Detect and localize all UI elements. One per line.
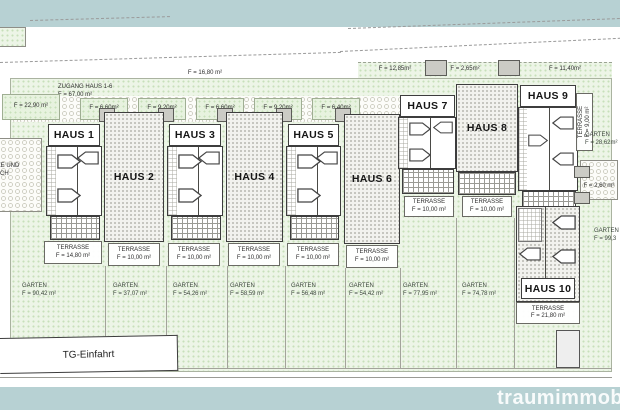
terrace-10-title: TERRASSE	[532, 306, 564, 313]
zugang-label: ZUGANG HAUS 1-6 F = 67,00 m²	[58, 84, 112, 99]
house-5-stair-hatch	[287, 147, 296, 215]
house-5-patio-hatch	[290, 216, 339, 240]
site-plan: F = 16,80 m² LÄTZE UND EREICH 0 m² ZUGAN…	[0, 0, 620, 410]
garden-2-area: F = 37,07 m²	[113, 291, 147, 299]
area-label-left-zone: F = 22,90 m²	[14, 103, 48, 111]
shed	[556, 330, 580, 368]
terrace-5-label-box: TERRASSE F = 10,00 m²	[287, 243, 339, 266]
terrace-5-area: F = 10,00 m²	[296, 255, 330, 262]
stair-arrow-left-icon	[552, 116, 574, 135]
stair-arrow-left-icon	[552, 215, 576, 235]
boundary-dash-line	[0, 52, 341, 63]
stair-arrow-left-icon	[433, 121, 453, 139]
house-2-name: HAUS 2	[114, 171, 154, 183]
paved-zone-left: LÄTZE UND EREICH 0 m²	[0, 138, 42, 212]
garden-9-area: F = 28,62m²	[585, 140, 618, 148]
entry-stub	[498, 60, 520, 76]
house-9-name: HAUS 9	[528, 90, 568, 102]
terrace-8-title: TERRASSE	[471, 199, 503, 206]
area-label-walkway: F = 16,80 m²	[170, 70, 240, 78]
garden-9-title: GARTEN	[585, 132, 618, 140]
house-1-label-box: HAUS 1	[48, 124, 100, 146]
garden-divider	[400, 268, 401, 368]
zugang-label-line1: ZUGANG HAUS 1-6	[58, 84, 112, 92]
garden-6-title: GARTEN	[349, 283, 383, 291]
house-4: HAUS 4	[226, 112, 283, 242]
tg-einfahrt-box: TG-Einfahrt	[0, 335, 178, 374]
stair-arrow-right-icon	[57, 188, 81, 208]
house-10-name: HAUS 10	[525, 283, 571, 295]
house-1-name: HAUS 1	[54, 129, 94, 141]
house-5-name: HAUS 5	[293, 129, 333, 141]
house-7-name: HAUS 7	[407, 100, 447, 112]
garden-8-label: GARTEN F = 74,78 m²	[462, 283, 496, 299]
bottom-band: traumimmobilien	[0, 387, 620, 410]
house-1-plan	[46, 146, 102, 216]
garden-boundary	[178, 368, 612, 369]
terrace-3-label-box: TERRASSE F = 10,00 m²	[168, 243, 220, 266]
garden-1-label: GARTEN F = 90,42 m²	[22, 283, 56, 299]
house-10: HAUS 10	[516, 206, 580, 302]
terrace-4-label-box: TERRASSE F = 10,00 m²	[228, 243, 280, 266]
house-9-label-box: HAUS 9	[520, 85, 576, 107]
stair-arrow-right-icon	[178, 188, 202, 208]
house-9-stair-hatch	[519, 108, 527, 190]
stair-arrow-left-icon	[316, 151, 338, 170]
garden-divider	[514, 218, 515, 368]
garden-9-label: GARTEN F = 28,62m²	[585, 132, 618, 148]
house-4-name: HAUS 4	[234, 171, 274, 183]
area-label-right-strip-2: F = 2,65m²	[440, 66, 490, 74]
stair-arrow-right-icon	[409, 148, 431, 167]
garden-2-title: GARTEN	[113, 283, 147, 291]
garden-10-area: F = 99,3	[594, 236, 619, 244]
garden-7-label: GARTEN F = 77,95 m²	[403, 283, 437, 299]
stair-arrow-right-icon	[528, 134, 548, 152]
garden-3-title: GARTEN	[173, 283, 207, 291]
house-9-wall	[549, 108, 550, 190]
green-patch-top-left	[0, 27, 26, 47]
garden-3-label: GARTEN F = 54,26 m²	[173, 283, 207, 299]
garden-4-label: GARTEN F = 58,59 m²	[230, 283, 264, 299]
area-label-right-side: F = 2,60 m²	[580, 183, 618, 191]
house-9-plan	[518, 107, 578, 191]
terrace-10-label-box: TERRASSE F = 21,80 m²	[516, 302, 580, 324]
top-band	[0, 0, 620, 27]
house-10-label-box: HAUS 10	[521, 278, 575, 299]
watermark: traumimmobilien	[497, 387, 620, 410]
terrace-6-title: TERRASSE	[356, 249, 388, 256]
house-3-name: HAUS 3	[175, 129, 215, 141]
area-label-right-strip-3: F = 11,40m²	[530, 66, 600, 74]
terrace-3-title: TERRASSE	[178, 247, 210, 254]
house-8: HAUS 8	[456, 84, 518, 172]
terrace-7-area: F = 10,00 m²	[412, 207, 446, 214]
area-label-right-strip-1: F = 12,85m²	[362, 66, 428, 74]
terrace-7-title: TERRASSE	[413, 199, 445, 206]
stair-arrow-left-icon	[77, 151, 99, 170]
terrace-1-title: TERRASSE	[57, 245, 89, 252]
garden-1-area: F = 90,42 m²	[22, 291, 56, 299]
terrace-2-title: TERRASSE	[118, 247, 150, 254]
garden-8-title: GARTEN	[462, 283, 496, 291]
boundary-dash-line	[340, 38, 620, 52]
tg-einfahrt-label: TG-Einfahrt	[63, 349, 115, 361]
garden-4-area: F = 58,59 m²	[230, 291, 264, 299]
house-8-patio-hatch	[458, 172, 516, 195]
terrace-6-area: F = 10,00 m²	[355, 257, 389, 264]
terrace-9-title: TERRASSE	[578, 95, 585, 149]
site-boundary-line	[0, 377, 612, 378]
terrace-2-area: F = 10,00 m²	[117, 255, 151, 262]
garden-6-label: GARTEN F = 54,42 m²	[349, 283, 383, 299]
house-5-plan	[286, 146, 341, 216]
house-7-stair-hatch	[399, 118, 408, 168]
stair-arrow-left-icon	[552, 249, 576, 269]
terrace-4-area: F = 10,00 m²	[237, 255, 271, 262]
house-6-name: HAUS 6	[352, 173, 392, 185]
terrace-10-area: F = 21,80 m²	[531, 313, 565, 320]
terrace-8-label-box: TERRASSE F = 10,00 m²	[462, 196, 512, 217]
left-cut-text-line2: EREICH	[0, 171, 19, 179]
garden-5-title: GARTEN	[291, 283, 325, 291]
house-1-stair-hatch	[47, 147, 56, 215]
terrace-4-title: TERRASSE	[238, 247, 270, 254]
garden-3-area: F = 54,26 m²	[173, 291, 207, 299]
house-2: HAUS 2	[104, 112, 164, 242]
garden-divider	[285, 266, 286, 368]
garden-7-area: F = 77,95 m²	[403, 291, 437, 299]
garden-8-area: F = 74,78 m²	[462, 291, 496, 299]
house-7-patio-hatch	[402, 169, 454, 194]
house-10-wall	[545, 207, 546, 279]
garden-5-area: F = 56,48 m²	[291, 291, 325, 299]
garden-2-label: GARTEN F = 37,07 m²	[113, 283, 147, 299]
garden-divider	[345, 268, 346, 368]
terrace-3-area: F = 10,00 m²	[177, 255, 211, 262]
house-8-name: HAUS 8	[467, 122, 507, 134]
garden-6-area: F = 54,42 m²	[349, 291, 383, 299]
garden-10-label: GARTEN F = 99,3	[594, 228, 619, 244]
house-6: HAUS 6	[344, 114, 400, 244]
terrace-6-label-box: TERRASSE F = 10,00 m²	[346, 245, 398, 268]
stair-arrow-left-icon	[519, 247, 541, 266]
garden-divider	[105, 266, 106, 337]
stair-arrow-right-icon	[409, 122, 431, 141]
garden-1-title: GARTEN	[22, 283, 56, 291]
terrace-1-area: F = 14,80 m²	[56, 253, 90, 260]
house-3-stair-hatch	[168, 147, 177, 215]
left-cut-text-line3: 0 m²	[0, 178, 19, 186]
house-10-stair-hatch	[518, 208, 542, 242]
entry-stub	[574, 192, 590, 204]
garden-divider	[456, 218, 457, 368]
terrace-8-area: F = 10,00 m²	[470, 207, 504, 214]
house-3-label-box: HAUS 3	[169, 124, 221, 146]
garden-4-title: GARTEN	[230, 283, 264, 291]
terrace-1-label-box: TERRASSE F = 14,80 m²	[44, 241, 102, 264]
house-1-patio-hatch	[50, 216, 100, 240]
house-7-plan	[398, 117, 456, 169]
garden-divider	[227, 266, 228, 368]
terrace-7-label-box: TERRASSE F = 10,00 m²	[404, 196, 454, 217]
garden-5-label: GARTEN F = 56,48 m²	[291, 283, 325, 299]
garden-7-title: GARTEN	[403, 283, 437, 291]
stair-arrow-left-icon	[198, 151, 220, 170]
garden-10-title: GARTEN	[594, 228, 619, 236]
terrace-5-title: TERRASSE	[297, 247, 329, 254]
stair-arrow-left-icon	[552, 152, 574, 171]
entry-patch-left: F = 22,90 m²	[2, 94, 60, 120]
terrace-2-label-box: TERRASSE F = 10,00 m²	[108, 243, 160, 266]
house-3-plan	[167, 146, 223, 216]
house-3-patio-hatch	[171, 216, 221, 240]
house-7-label-box: HAUS 7	[400, 95, 455, 117]
left-cut-text-line1: LÄTZE UND	[0, 163, 19, 171]
entry-stub	[574, 166, 590, 178]
stair-arrow-right-icon	[297, 188, 321, 208]
house-5-label-box: HAUS 5	[288, 124, 339, 146]
